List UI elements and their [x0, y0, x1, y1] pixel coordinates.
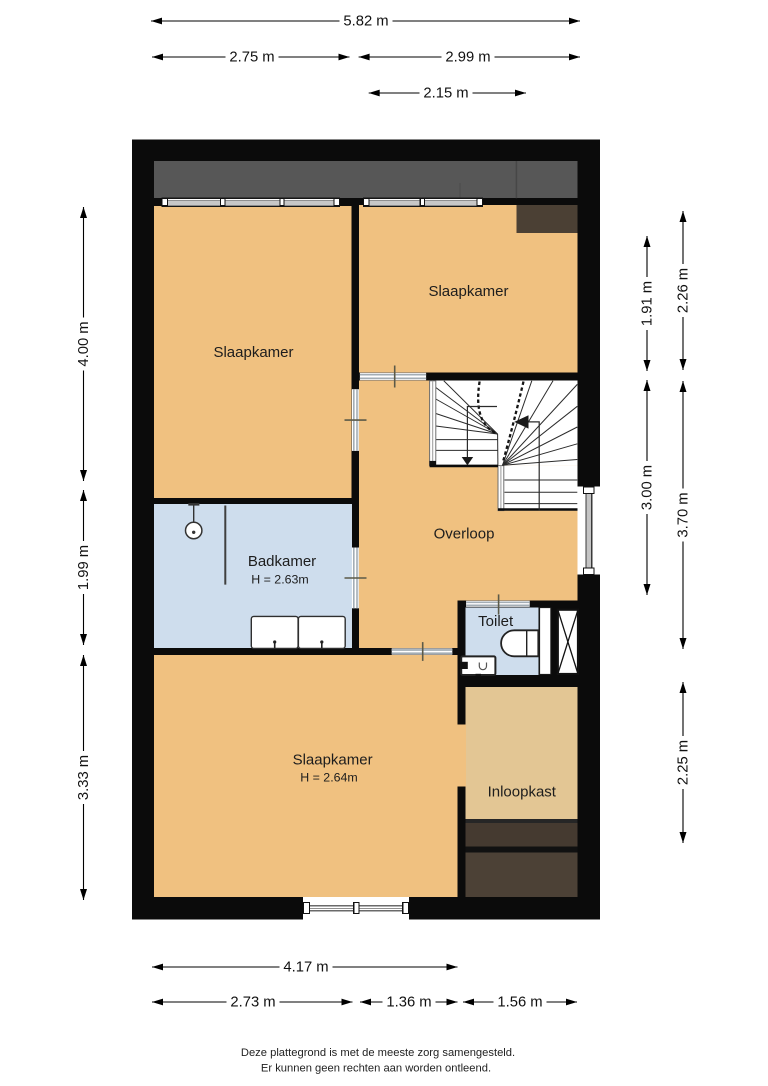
svg-text:3.33 m: 3.33 m: [76, 755, 92, 800]
svg-text:2.15 m: 2.15 m: [423, 86, 468, 102]
svg-text:2.25 m: 2.25 m: [676, 740, 692, 785]
svg-text:2.26 m: 2.26 m: [676, 268, 692, 313]
svg-text:5.82 m: 5.82 m: [343, 14, 388, 30]
svg-text:3.70 m: 3.70 m: [676, 492, 692, 537]
svg-text:4.00 m: 4.00 m: [76, 321, 92, 366]
svg-text:3.00 m: 3.00 m: [640, 465, 656, 510]
svg-text:Slaapkamer: Slaapkamer: [428, 283, 508, 300]
svg-text:4.17 m: 4.17 m: [283, 960, 328, 976]
svg-text:1.56 m: 1.56 m: [497, 995, 542, 1011]
svg-text:Deze plattegrond is met de mee: Deze plattegrond is met de meeste zorg s…: [241, 1047, 515, 1059]
svg-text:Er kunnen geen rechten aan wor: Er kunnen geen rechten aan worden ontlee…: [261, 1063, 491, 1075]
svg-text:2.73 m: 2.73 m: [230, 995, 275, 1011]
svg-text:H = 2.63m: H = 2.63m: [251, 573, 309, 587]
svg-text:Badkamer: Badkamer: [248, 553, 316, 570]
svg-text:Inloopkast: Inloopkast: [488, 784, 557, 801]
svg-text:1.99 m: 1.99 m: [76, 545, 92, 590]
svg-text:2.99 m: 2.99 m: [445, 50, 490, 66]
svg-text:1.91 m: 1.91 m: [640, 281, 656, 326]
svg-text:Toilet: Toilet: [478, 613, 514, 630]
svg-text:2.75 m: 2.75 m: [229, 50, 274, 66]
svg-text:Slaapkamer: Slaapkamer: [213, 344, 293, 361]
svg-text:1.36 m: 1.36 m: [386, 995, 431, 1011]
svg-text:Slaapkamer: Slaapkamer: [293, 752, 373, 769]
svg-text:Overloop: Overloop: [434, 526, 495, 543]
svg-text:H = 2.64m: H = 2.64m: [300, 771, 358, 785]
